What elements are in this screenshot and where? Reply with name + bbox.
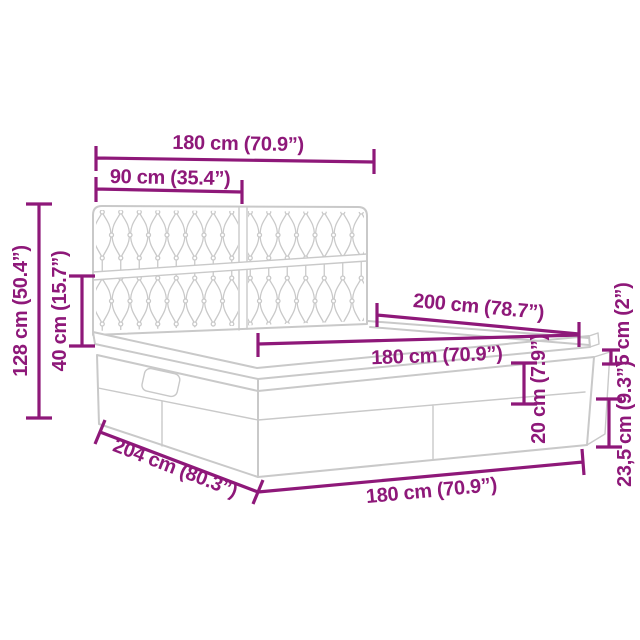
dim-headboard-lower-height: 40 cm (15.7”) — [49, 251, 95, 372]
dim-headboard-width-label: 180 cm (70.9”) — [172, 132, 304, 156]
dim-total-height-label: 128 cm (50.4”) — [10, 245, 32, 376]
dim-mattress-height-label: 20 cm (7.9”) — [528, 334, 550, 444]
dim-top-frame-height-label: 5 cm (2”) — [612, 283, 634, 366]
dim-headboard-lower-height-label: 40 cm (15.7”) — [49, 251, 71, 372]
dim-total-height: 128 cm (50.4”) — [10, 204, 52, 418]
dim-base-height: 23,5 cm (9.3”) — [596, 361, 636, 487]
bed-dimension-diagram: 180 cm (70.9”) 90 cm (35.4”) 128 cm (50.… — [0, 0, 640, 640]
dim-mattress-width-label: 180 cm (70.9”) — [371, 343, 503, 370]
diagram-canvas: 180 cm (70.9”) 90 cm (35.4”) 128 cm (50.… — [0, 0, 640, 640]
dim-headboard-half-width: 90 cm (35.4”) — [96, 166, 242, 204]
dim-base-height-label: 23,5 cm (9.3”) — [614, 361, 636, 487]
dim-headboard-half-width-label: 90 cm (35.4”) — [110, 166, 231, 190]
dimension-line — [69, 276, 95, 346]
